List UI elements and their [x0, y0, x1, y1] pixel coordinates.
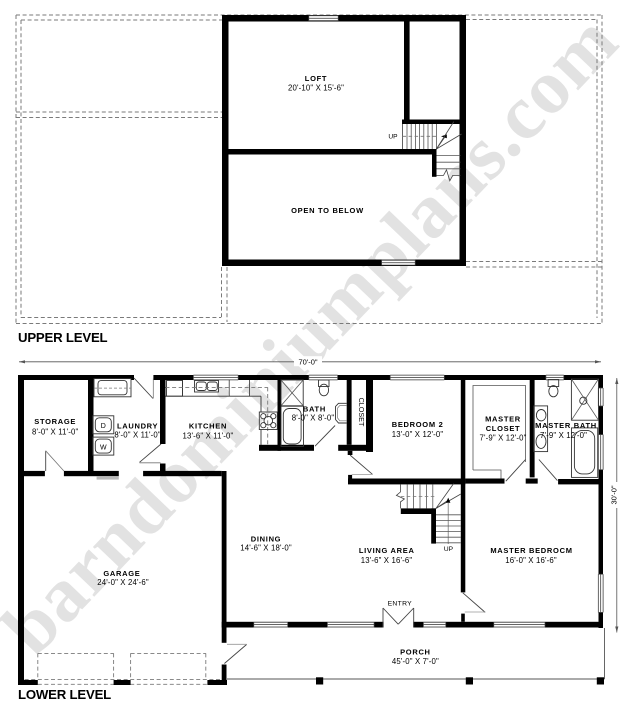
- svg-text:14'-6" X 18'-0": 14'-6" X 18'-0": [240, 543, 292, 552]
- svg-text:13'-0" X 12'-0": 13'-0" X 12'-0": [392, 430, 444, 439]
- svg-text:30'-0": 30'-0": [609, 485, 618, 504]
- svg-text:20'-10" X 15'-6": 20'-10" X 15'-6": [288, 84, 344, 93]
- svg-text:CLOSET: CLOSET: [486, 424, 521, 433]
- svg-text:7'-9" X 12'-0": 7'-9" X 12'-0": [479, 434, 526, 443]
- svg-text:PORCH: PORCH: [400, 647, 431, 656]
- svg-text:MASTER BEDROCM: MASTER BEDROCM: [490, 546, 572, 555]
- svg-text:LAUNDRY: LAUNDRY: [117, 421, 158, 430]
- svg-text:UP: UP: [444, 546, 454, 553]
- svg-text:GARAGE: GARAGE: [103, 569, 140, 578]
- svg-text:8'-0" X 11'-0": 8'-0" X 11'-0": [32, 427, 79, 436]
- svg-text:LIVING AREA: LIVING AREA: [359, 546, 415, 555]
- svg-text:UPPER LEVEL: UPPER LEVEL: [18, 330, 108, 345]
- svg-text:LOFT: LOFT: [305, 74, 327, 83]
- svg-text:KITCHEN: KITCHEN: [189, 421, 227, 430]
- svg-text:LOWER LEVEL: LOWER LEVEL: [18, 687, 111, 702]
- svg-text:W: W: [100, 444, 107, 451]
- svg-text:13'-6" X 16'-6": 13'-6" X 16'-6": [361, 556, 413, 565]
- svg-text:UP: UP: [388, 134, 398, 141]
- svg-text:BATH: BATH: [303, 404, 326, 413]
- svg-text:BEDROOM 2: BEDROOM 2: [392, 420, 444, 429]
- svg-text:24'-0" X 24'-6": 24'-0" X 24'-6": [97, 578, 149, 587]
- svg-text:ENTRY: ENTRY: [388, 601, 413, 608]
- svg-text:DINING: DINING: [251, 534, 281, 543]
- svg-text:MASTER BATH: MASTER BATH: [535, 421, 597, 430]
- svg-text:D: D: [101, 423, 106, 430]
- svg-text:STORAGE: STORAGE: [34, 417, 76, 426]
- svg-text:OPEN TO BELOW: OPEN TO BELOW: [291, 206, 364, 215]
- svg-text:45'-0" X 7'-0": 45'-0" X 7'-0": [392, 657, 439, 666]
- svg-text:CLOSET: CLOSET: [357, 398, 366, 427]
- svg-text:16'-0" X 16'-6": 16'-0" X 16'-6": [505, 556, 557, 565]
- svg-text:8'-0" X 11'-0": 8'-0" X 11'-0": [114, 430, 161, 439]
- svg-text:8'-0" X 8'-0": 8'-0" X 8'-0": [292, 413, 335, 422]
- svg-text:MASTER: MASTER: [485, 414, 521, 423]
- svg-text:7'-9" X 12'-0": 7'-9" X 12'-0": [540, 431, 587, 440]
- svg-text:70'-0": 70'-0": [298, 357, 317, 366]
- svg-text:13'-6" X 11'-0": 13'-6" X 11'-0": [183, 431, 234, 440]
